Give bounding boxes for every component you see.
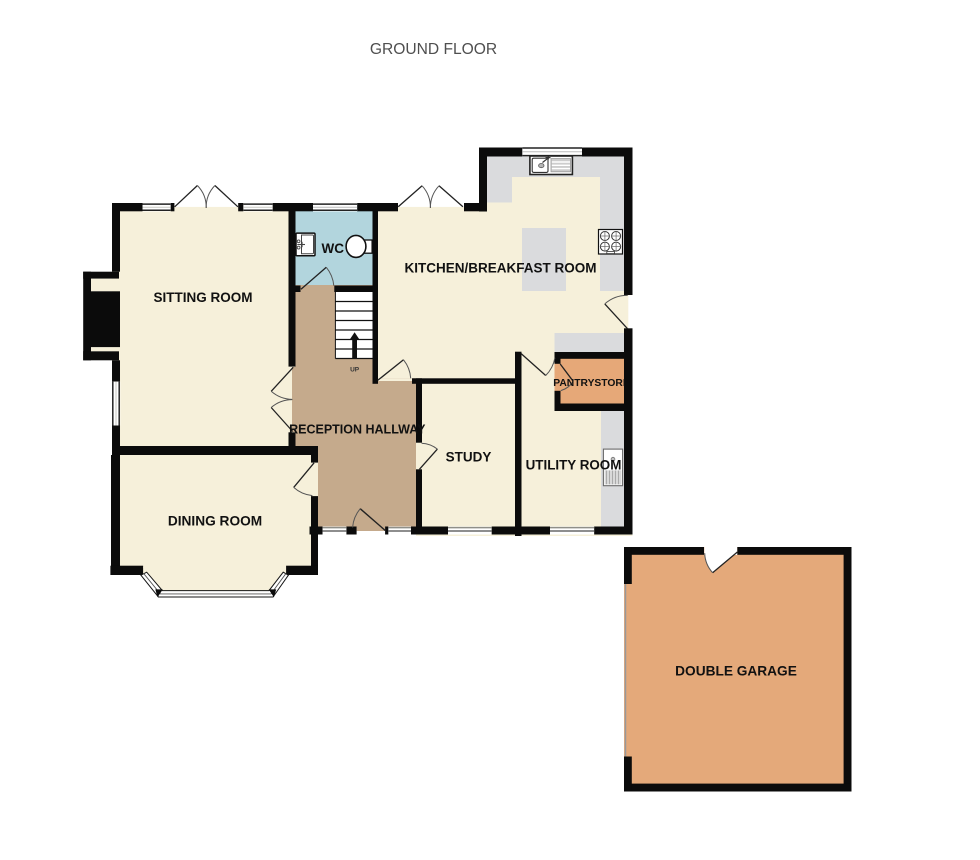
svg-text:DINING ROOM: DINING ROOM	[168, 514, 262, 529]
svg-text:WC: WC	[322, 241, 345, 256]
svg-text:UP: UP	[350, 366, 360, 373]
svg-text:STUDY: STUDY	[446, 449, 492, 464]
svg-text:GROUND FLOOR: GROUND FLOOR	[370, 41, 497, 58]
svg-text:KITCHEN/BREAKFAST ROOM: KITCHEN/BREAKFAST ROOM	[405, 260, 597, 275]
svg-text:DOUBLE GARAGE: DOUBLE GARAGE	[675, 663, 797, 678]
svg-text:RECEPTION HALLWAY: RECEPTION HALLWAY	[289, 422, 426, 436]
svg-text:PANTRYSTORE: PANTRYSTORE	[553, 378, 630, 389]
svg-text:UTILITY ROOM: UTILITY ROOM	[526, 457, 622, 472]
svg-text:SITTING ROOM: SITTING ROOM	[154, 290, 253, 305]
